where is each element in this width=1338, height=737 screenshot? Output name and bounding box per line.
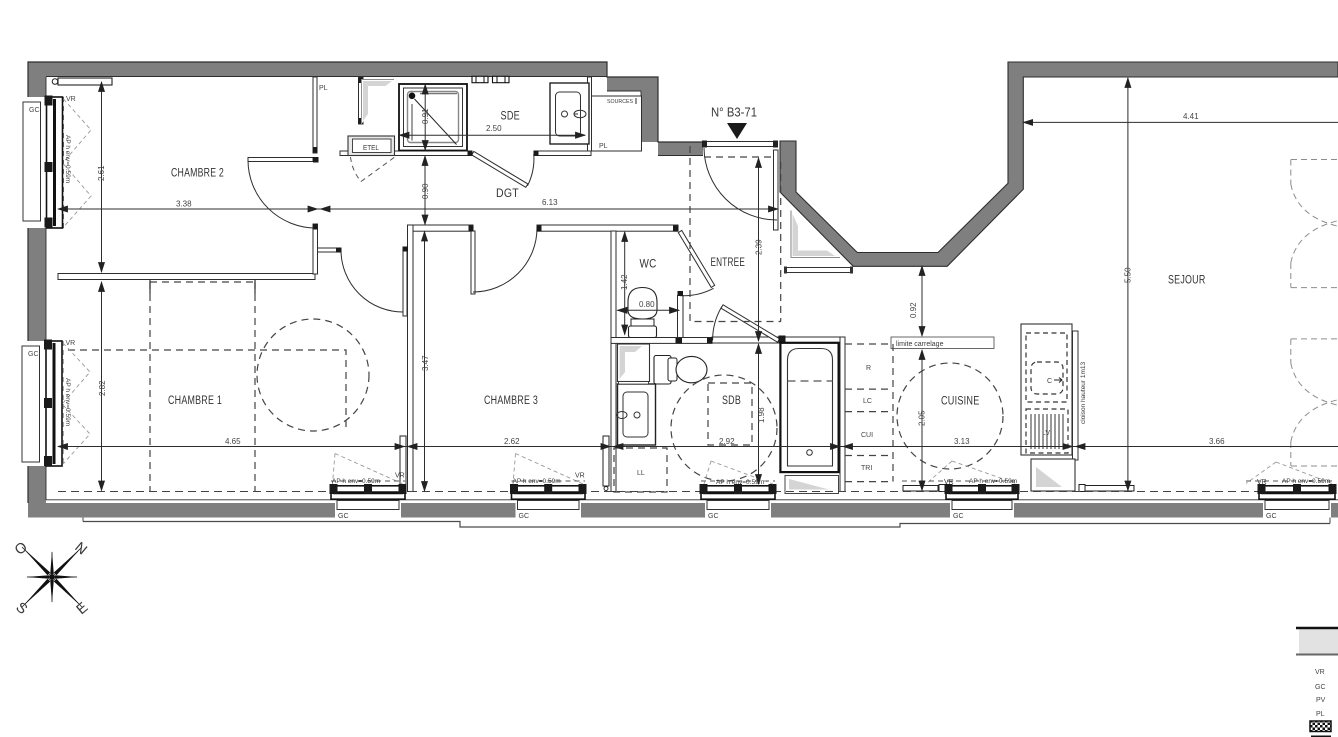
svg-text:VR: VR <box>1257 479 1267 486</box>
svg-text:3.13: 3.13 <box>954 437 970 446</box>
svg-text:2.92: 2.92 <box>719 437 735 446</box>
svg-text:R: R <box>866 365 871 372</box>
svg-text:5.50: 5.50 <box>1124 267 1133 283</box>
svg-text:3.47: 3.47 <box>421 355 430 371</box>
svg-text:CUISINE: CUISINE <box>941 396 980 408</box>
svg-text:VR: VR <box>66 340 76 347</box>
svg-text:LC: LC <box>863 398 872 405</box>
svg-text:AP h env=0.59m: AP h env=0.59m <box>716 479 764 486</box>
svg-text:4.65: 4.65 <box>225 437 241 446</box>
svg-text:GC: GC <box>338 513 349 520</box>
svg-text:limite carrelage: limite carrelage <box>896 341 944 348</box>
svg-text:2.05: 2.05 <box>918 410 927 426</box>
svg-text:0.91: 0.91 <box>421 108 430 124</box>
svg-text:2.61: 2.61 <box>97 165 106 181</box>
svg-text:CHAMBRE 1: CHAMBRE 1 <box>168 395 222 407</box>
svg-text:VR: VR <box>575 473 585 480</box>
svg-text:6.13: 6.13 <box>542 198 558 207</box>
svg-text:N° B3-71: N° B3-71 <box>711 105 757 120</box>
svg-text:AP h env=0.59m: AP h env=0.59m <box>64 135 71 183</box>
svg-text:SDE: SDE <box>501 111 521 123</box>
svg-text:CUI: CUI <box>861 432 873 439</box>
svg-text:0.90: 0.90 <box>421 183 430 199</box>
svg-text:GC: GC <box>28 351 39 358</box>
svg-text:SDB: SDB <box>722 395 741 407</box>
svg-text:3.66: 3.66 <box>1209 437 1225 446</box>
svg-text:CHAMBRE 3: CHAMBRE 3 <box>484 395 538 407</box>
svg-text:GC: GC <box>708 513 719 520</box>
svg-text:GC: GC <box>1266 513 1277 520</box>
svg-text:2.82: 2.82 <box>98 380 107 396</box>
svg-text:WC: WC <box>640 259 657 271</box>
svg-text:GC: GC <box>29 107 40 114</box>
svg-text:4.41: 4.41 <box>1183 112 1199 121</box>
svg-text:PL: PL <box>599 143 608 150</box>
svg-text:ETEL: ETEL <box>363 143 379 152</box>
svg-text:AP h env=0.59m: AP h env=0.59m <box>969 478 1017 485</box>
svg-text:1.98: 1.98 <box>757 407 766 423</box>
svg-text:2.39: 2.39 <box>755 239 764 255</box>
svg-text:VR: VR <box>66 96 76 103</box>
svg-text:CHAMBRE 2: CHAMBRE 2 <box>171 168 224 180</box>
svg-text:1.42: 1.42 <box>620 274 629 290</box>
svg-text:AP h env=0.59m: AP h env=0.59m <box>1282 478 1330 485</box>
svg-text:2.50: 2.50 <box>486 124 502 133</box>
svg-text:VR: VR <box>944 479 954 486</box>
svg-text:PL: PL <box>1316 711 1325 718</box>
svg-text:GC: GC <box>953 513 964 520</box>
svg-text:0.92: 0.92 <box>909 302 918 318</box>
svg-text:LL: LL <box>637 470 645 477</box>
svg-text:SEJOUR: SEJOUR <box>1168 275 1206 287</box>
svg-text:AP h env=0.59m: AP h env=0.59m <box>513 478 561 485</box>
svg-text:VR: VR <box>1315 669 1325 676</box>
svg-text:VR: VR <box>395 473 405 480</box>
svg-text:AP h env=0.59m: AP h env=0.59m <box>332 478 380 485</box>
svg-text:PV: PV <box>1316 697 1326 704</box>
svg-text:cloison hauteur 1m13: cloison hauteur 1m13 <box>1080 361 1087 424</box>
svg-text:PL: PL <box>319 85 328 92</box>
svg-text:3.38: 3.38 <box>176 200 192 209</box>
svg-text:0.80: 0.80 <box>639 300 655 309</box>
svg-text:GC: GC <box>1315 684 1326 691</box>
svg-text:2.62: 2.62 <box>504 437 520 446</box>
svg-text:DGT: DGT <box>496 188 519 200</box>
svg-text:SOURCES: SOURCES <box>607 99 633 105</box>
svg-text:AP h env=0.59m: AP h env=0.59m <box>64 378 71 426</box>
svg-text:ENTREE: ENTREE <box>711 257 746 269</box>
svg-text:GC: GC <box>519 513 530 520</box>
svg-text:TRI: TRI <box>861 465 872 472</box>
svg-text:C: C <box>1047 378 1052 385</box>
svg-text:LV: LV <box>1042 430 1050 437</box>
